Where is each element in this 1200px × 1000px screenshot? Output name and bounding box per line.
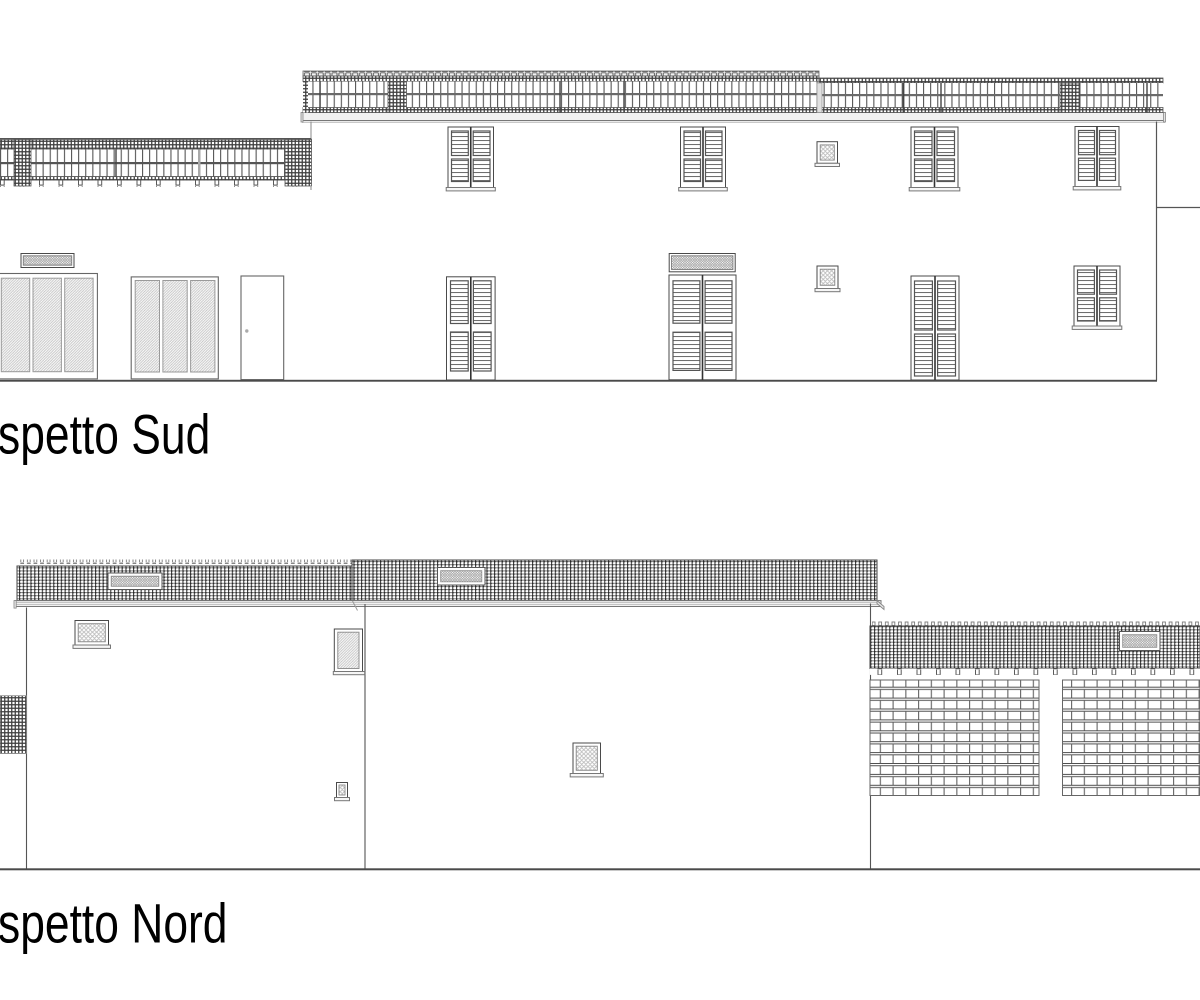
svg-text:spetto Nord: spetto Nord xyxy=(0,893,227,955)
svg-text:spetto Sud: spetto Sud xyxy=(0,404,210,466)
